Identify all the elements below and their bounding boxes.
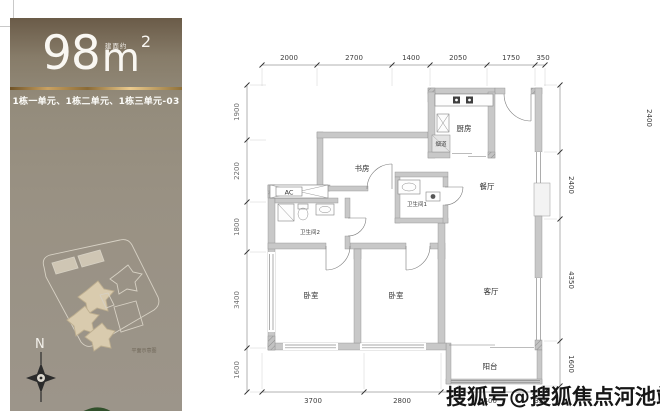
bathroom2-fixtures [278, 204, 334, 221]
site-building-bar3 [114, 301, 143, 332]
dim-left-1: 1900 [233, 103, 241, 121]
entry-door-arc [504, 94, 531, 121]
sink-icon [316, 204, 334, 215]
area-prefix-label: 建面约 [105, 40, 128, 50]
compass-hub-dot [40, 377, 43, 380]
dim-left-2: 2200 [233, 162, 241, 180]
dim-top-1: 2000 [280, 54, 298, 62]
dim-right-2: 2400 [567, 176, 575, 194]
area-number: 98 [42, 26, 100, 81]
site-footprint-2 [110, 265, 142, 294]
compass: N [20, 334, 66, 406]
room-label-bath2: 卫生间2 [300, 228, 320, 236]
compass-north-label: N [35, 337, 45, 352]
walls [268, 88, 550, 384]
dim-left-4: 3400 [233, 291, 241, 309]
watermark: 搜狐号@搜狐焦点河池站 [446, 381, 660, 411]
area-superscript: 2 [141, 32, 151, 51]
sink-icon [398, 180, 420, 194]
site-building-bar1 [52, 257, 78, 274]
building-units-line: 1栋一单元、1栋二单元、1栋三单元-03 [10, 94, 182, 107]
site-building-bar2 [78, 250, 104, 267]
bathroom1-fixtures [398, 180, 440, 201]
area-headline: 98建面约m2 [10, 30, 182, 78]
room-label-bath1: 卫生间1 [407, 200, 427, 208]
room-label-ac: AC [285, 189, 294, 197]
dim-top-4: 2050 [449, 54, 467, 62]
study-door-arc [367, 164, 392, 189]
brochure-panel: 98建面约m2 1栋一单元、1栋二单元、1栋三单元-03 平面示意图 N [10, 18, 182, 411]
dim-left-5: 1600 [233, 361, 241, 379]
dim-bottom-2: 2800 [393, 397, 411, 405]
bedroom1-door-arc [326, 246, 350, 270]
room-label-bedroom1: 卧室 [304, 290, 319, 300]
dim-right-3: 4350 [567, 271, 575, 289]
room-label-balcony: 阳台 [483, 361, 498, 371]
site-plan-caption: 平面示意图 [131, 347, 156, 354]
page: { "left_panel": { "area_number": "98", "… [0, 0, 660, 411]
gold-divider [10, 87, 182, 90]
room-label-dining: 餐厅 [480, 182, 495, 191]
dim-left-3: 1800 [233, 218, 241, 236]
ac-platform [270, 185, 328, 198]
floor-plan: 2000 2700 1400 2050 1750 350 2400 2400 4… [190, 40, 660, 411]
dim-top-3: 1400 [402, 54, 420, 62]
bedroom2-door-arc [406, 246, 430, 270]
room-label-living: 客厅 [484, 286, 499, 296]
room-label-study: 书房 [355, 163, 370, 173]
area-unit-wrap: 建面约m [102, 39, 140, 78]
dim-right-1: 2400 [645, 109, 653, 127]
dim-top-6: 350 [536, 54, 549, 62]
dim-top-2: 2700 [345, 54, 363, 62]
dim-bottom-1: 3700 [304, 397, 322, 405]
bath2-door-arc [348, 218, 366, 236]
room-label-kitchen: 厨房 [457, 123, 472, 133]
dim-top-5: 1750 [502, 54, 520, 62]
dim-right-4: 1600 [567, 355, 575, 373]
room-label-bedroom2: 卧室 [389, 290, 404, 300]
room-label-flue: 烟道 [435, 140, 447, 148]
plant-shape [72, 407, 124, 411]
plant-icon [62, 394, 134, 411]
bath1-door-arc [445, 187, 463, 205]
